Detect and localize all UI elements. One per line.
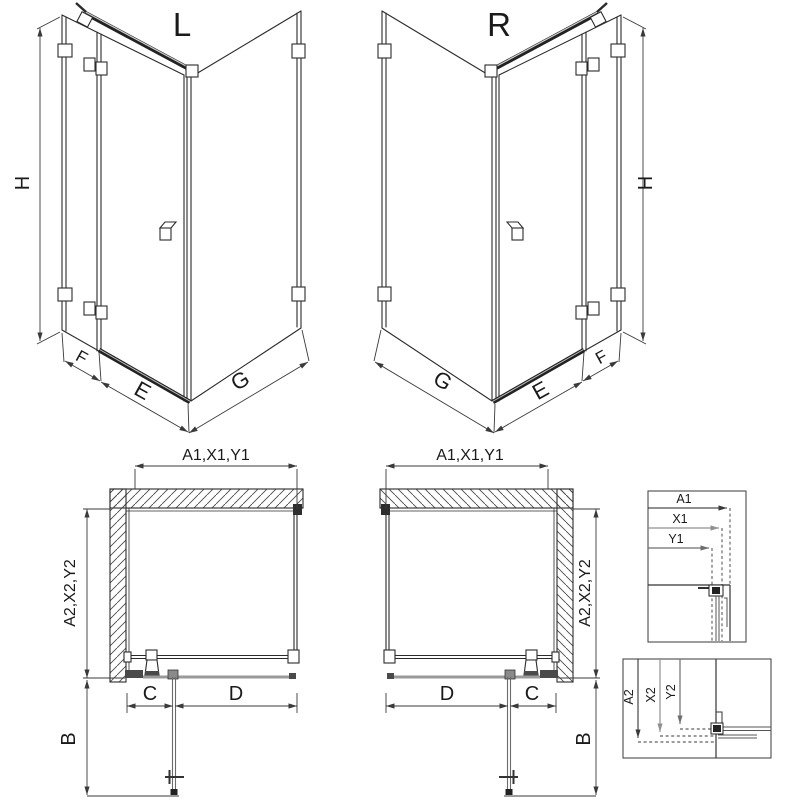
- dim-h-label-left: H: [12, 176, 34, 190]
- detail-y1-label: Y1: [668, 532, 683, 546]
- iso-right-label: R: [487, 6, 511, 43]
- dim-h-label-right: H: [635, 176, 657, 190]
- plan-right-width-label: A1,X1,Y1: [436, 447, 504, 464]
- shower-enclosure-diagram: L H F E G R H F E G A1,X1,Y1 A2,X2,Y2 C …: [0, 0, 800, 800]
- plan-right-c-label: C: [525, 683, 539, 705]
- detail-box-depth: A2 X2 Y2: [622, 659, 771, 758]
- iso-left-view: L H F E G: [12, 3, 309, 433]
- plan-left-b-label: B: [58, 732, 80, 745]
- diagram-canvas: L H F E G R H F E G A1,X1,Y1 A2,X2,Y2 C …: [0, 0, 800, 800]
- detail-a2-label: A2: [622, 689, 636, 704]
- detail-a1-label: A1: [676, 492, 691, 506]
- plan-left-depth-label: A2,X2,Y2: [62, 559, 79, 627]
- plan-right-depth-label: A2,X2,Y2: [577, 559, 594, 627]
- detail-x1-label: X1: [672, 512, 687, 526]
- dim-f-label-left: F: [73, 346, 91, 368]
- plan-left-width-label: A1,X1,Y1: [182, 447, 250, 464]
- detail-box-width: A1 X1 Y1: [648, 491, 746, 642]
- iso-left-label: L: [173, 6, 191, 43]
- detail-y2-label: Y2: [664, 684, 678, 699]
- plan-right-view: A1,X1,Y1 A2,X2,Y2 D C B: [380, 447, 600, 796]
- plan-right-b-label: B: [573, 732, 595, 745]
- detail-x2-label: X2: [644, 687, 658, 702]
- dim-g-label-left: G: [226, 365, 254, 395]
- plan-right-d-label: D: [440, 683, 454, 705]
- plan-left-c-label: C: [143, 683, 157, 705]
- dim-g-label-right: G: [429, 365, 457, 395]
- iso-right-view: R H F E G: [374, 3, 657, 433]
- plan-left-view: A1,X1,Y1 A2,X2,Y2 C D B: [58, 447, 303, 796]
- dim-f-label-right: F: [592, 346, 610, 368]
- plan-left-d-label: D: [229, 683, 243, 705]
